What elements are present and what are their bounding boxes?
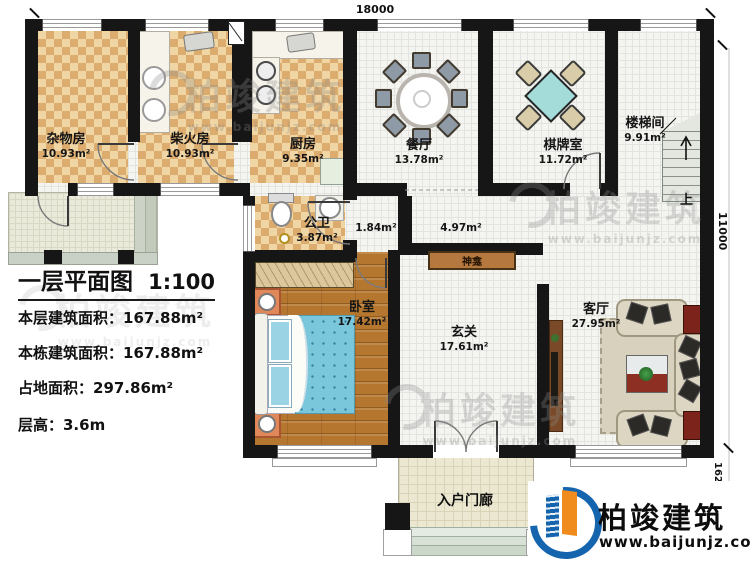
- corridor-area-large: 4.97m²: [431, 222, 491, 234]
- dimension-top: 18000: [340, 3, 410, 16]
- drawing-title: 一层平面图: [18, 269, 133, 295]
- room-label-firewood: 柴火房10.93m²: [150, 133, 230, 160]
- room-label-foyer: 玄关17.61m²: [424, 326, 504, 353]
- room-label-dining: 餐厅13.78m²: [379, 139, 459, 166]
- room-label-bathroom: 公卫3.87m²: [277, 217, 357, 244]
- logo-building-orange: [562, 490, 577, 536]
- corridor-area-small: 1.84m²: [346, 222, 406, 234]
- logo-company-name: 柏竣建筑: [598, 495, 726, 537]
- info-footprint-area: 占地面积：297.86m²: [18, 377, 173, 398]
- company-logo-block: 柏竣建筑 www.baijunjz.com: [528, 481, 743, 561]
- floor-plan-canvas: 神龛: [0, 0, 750, 567]
- room-label-bedroom: 卧室17.42m²: [322, 301, 402, 328]
- dimension-right: 11000: [716, 212, 729, 272]
- info-floor-height: 层高：3.6m: [18, 414, 105, 435]
- room-label-living: 客厅27.95m²: [556, 303, 636, 330]
- room-label-kitchen: 厨房9.35m²: [263, 138, 343, 165]
- drawing-title-row: 一层平面图 1:100: [18, 262, 215, 301]
- room-label-storage: 杂物房10.93m²: [26, 133, 106, 160]
- stair-up-label: 上: [680, 189, 698, 204]
- porch-label: 入户门廊: [405, 490, 525, 506]
- room-label-stairwell: 楼梯间9.91m²: [605, 117, 685, 144]
- drawing-scale: 1:100: [148, 270, 215, 294]
- info-floor-area: 本层建筑面积：167.88m²: [18, 307, 203, 328]
- room-label-game: 棋牌室11.72m²: [523, 139, 603, 166]
- logo-building-blue: [546, 494, 559, 537]
- logo-website: www.baijunjz.com: [599, 533, 750, 551]
- info-building-area: 本栋建筑面积：167.88m²: [18, 342, 203, 363]
